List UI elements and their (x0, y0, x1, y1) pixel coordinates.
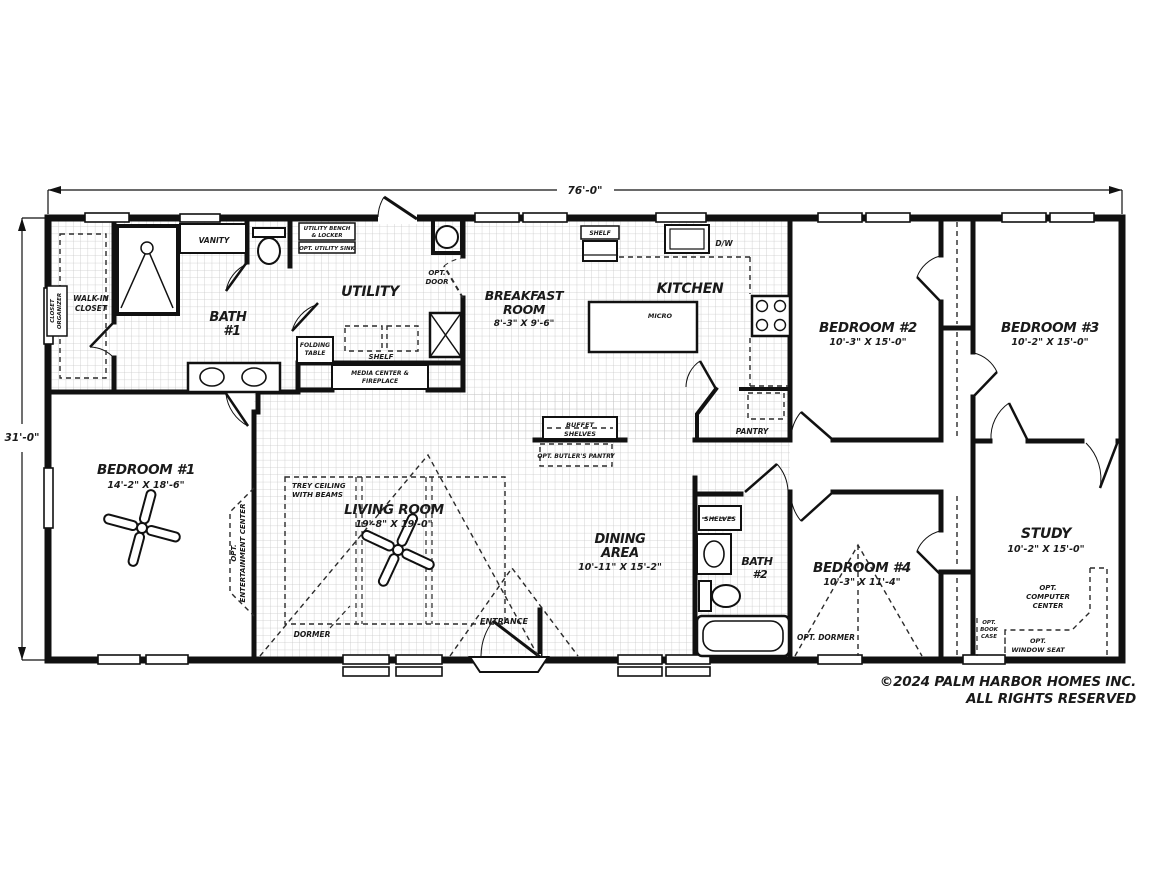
buffet-label: BUFFET (566, 421, 595, 429)
breakfast-room-label: ROOM (503, 302, 546, 317)
entrance-label: ENTRANCE (480, 617, 529, 626)
ceiling-fan-icon (103, 489, 181, 567)
double-vanity (188, 363, 280, 392)
trey-ceiling-label: TREY CEILING (292, 482, 346, 490)
opt-dormer-label: OPT. DORMER (797, 633, 855, 642)
living-room-dims: 19'-8" X 19'-0" (355, 519, 432, 530)
kitchen-cabinet (583, 241, 617, 261)
dimension-left: 31'-0" (5, 218, 46, 660)
bath2-label: BATH (741, 555, 772, 568)
bedroom4-label: BEDROOM #4 (813, 560, 911, 576)
bedroom3-label: BEDROOM #3 (1001, 320, 1099, 336)
window (523, 213, 567, 222)
window (146, 655, 188, 664)
overall-depth-label: 31'-0" (5, 432, 40, 444)
kitchen-sink-icon (665, 225, 709, 253)
overall-width-label: 76'-0" (568, 185, 603, 197)
opt-bookcase-label: BOOK (980, 627, 999, 633)
buffet-label: SHELVES (564, 430, 596, 438)
bath2-sink (697, 534, 731, 574)
bedroom4-dims: 10'-3" X 11'-4" (823, 577, 900, 588)
vanity-label: VANITY (199, 236, 231, 245)
breakfast-room-label: BREAKFAST (485, 288, 565, 303)
window (180, 214, 220, 222)
closet-organizer-label: CLOSET (50, 298, 56, 323)
shower (117, 226, 178, 314)
dimension-top: 76'-0" (48, 185, 1122, 214)
arrow-down-icon (18, 647, 26, 660)
dining-dims: 10'-11" X 15'-2" (578, 562, 662, 573)
window (396, 655, 442, 664)
arrow-right-icon (1109, 186, 1122, 194)
trey-ceiling-label: WITH BEAMS (292, 491, 343, 499)
window (396, 667, 442, 676)
copyright-line1: ©2024 PALM HARBOR HOMES INC. (880, 674, 1136, 690)
kitchen-shelf-label: SHELF (589, 230, 611, 237)
opt-bookcase-label: OPT. (982, 620, 996, 626)
opt-door-label: DOOR (425, 278, 448, 286)
study-label: STUDY (1021, 526, 1073, 542)
floor-plan-drawing: 76'-0" 31'-0" (0, 0, 1149, 882)
opt-computer-label: OPT. (1039, 584, 1056, 592)
pantry-label: PANTRY (736, 427, 770, 436)
dormer-label: DORMER (294, 630, 331, 639)
dishwasher-label: D/W (715, 239, 733, 248)
bedroom2-label: BEDROOM #2 (819, 320, 917, 336)
media-center-label: MEDIA CENTER & (351, 370, 409, 377)
walk-in-closet-label: CLOSET (75, 304, 108, 313)
window (475, 213, 519, 222)
opt-window-seat-label: OPT. (1030, 637, 1046, 645)
dining-label: AREA (600, 546, 639, 561)
utility-bench-label: UTILITY BENCH (304, 226, 351, 232)
window (343, 655, 389, 664)
window (656, 213, 706, 222)
floor-plan-page: 76'-0" 31'-0" (0, 0, 1149, 882)
microwave-label: MICRO (648, 312, 673, 320)
folding-table-label: TABLE (305, 350, 327, 357)
opt-computer-label: COMPUTER (1026, 593, 1070, 601)
entertainment-center-label: OPT. ENTERTAINMENT CENTER (230, 504, 247, 603)
floor-living-dining (254, 392, 695, 660)
dining-label: DINING (594, 532, 646, 547)
bedroom1-dims: 14'-2" X 18'-6" (107, 480, 184, 491)
window (1002, 213, 1046, 222)
utility-bench-label: & LOCKER (312, 233, 343, 239)
opt-window-seat-label: WINDOW SEAT (1011, 646, 1065, 654)
entry-threshold (470, 657, 548, 672)
window (818, 213, 862, 222)
bath1-label: BATH (209, 310, 247, 325)
opt-utility-sink-label: OPT. UTILITY SINK (299, 246, 356, 252)
media-center-label: FIREPLACE (362, 378, 399, 385)
bathtub-icon (697, 616, 789, 656)
window (666, 667, 710, 676)
arrow-up-icon (18, 218, 26, 231)
opt-bookcase-label: CASE (981, 634, 997, 640)
closet-organizer-label: ORGANIZER (57, 293, 63, 329)
bath2-label: #2 (753, 568, 768, 581)
opt-door-label: OPT. (428, 269, 445, 277)
window (85, 213, 129, 222)
shelves-label: SHELVES (704, 515, 736, 523)
opt-computer-label: CENTER (1033, 602, 1064, 610)
breakfast-room-dims: 8'-3" X 9'-6" (494, 319, 555, 329)
walk-in-closet-label: WALK-IN (73, 294, 109, 303)
svg-text:OPT.: OPT. (230, 544, 238, 561)
window (1050, 213, 1094, 222)
copyright: ©2024 PALM HARBOR HOMES INC. ALL RIGHTS … (880, 674, 1136, 707)
window (343, 667, 389, 676)
kitchen-island (589, 302, 697, 352)
bedroom2-dims: 10'-3" X 15'-0" (829, 337, 906, 348)
washer-icon (436, 226, 458, 248)
arrow-left-icon (48, 186, 61, 194)
study-dims: 10'-2" X 15'-0" (1007, 544, 1084, 555)
bedroom3-dims: 10'-2" X 15'-0" (1011, 337, 1088, 348)
range-icon (752, 296, 790, 336)
window (98, 655, 140, 664)
window (866, 213, 910, 222)
butlers-pantry-label: OPT. BUTLER'S PANTRY (537, 453, 615, 460)
water-heater-icon (430, 313, 461, 357)
folding-table-label: FOLDING (300, 342, 330, 349)
window (618, 667, 662, 676)
svg-text:ENTERTAINMENT CENTER: ENTERTAINMENT CENTER (239, 504, 247, 603)
copyright-line2: ALL RIGHTS RESERVED (965, 691, 1136, 707)
bath1-label: #1 (223, 324, 241, 339)
window (44, 468, 53, 528)
living-room-label: LIVING ROOM (344, 502, 445, 518)
window (618, 655, 662, 664)
window (963, 655, 1005, 664)
bedroom1-label: BEDROOM #1 (97, 462, 195, 478)
shelf-label: SHELF (369, 353, 394, 361)
utility-label: UTILITY (341, 284, 401, 300)
kitchen-label: KITCHEN (657, 281, 724, 297)
media-center-box (332, 365, 428, 389)
window (818, 655, 862, 664)
